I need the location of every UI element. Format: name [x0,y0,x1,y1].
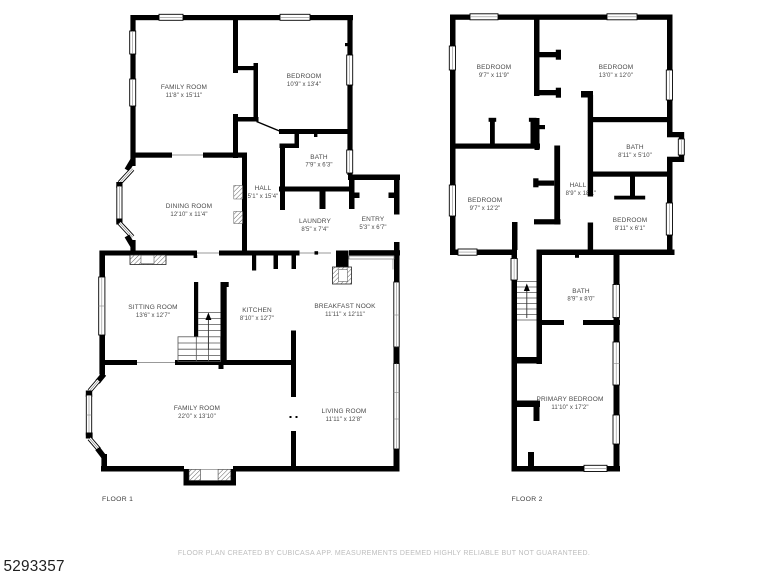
svg-text:ENTRY: ENTRY [362,216,385,223]
svg-text:FLOOR PLAN CREATED BY CUBICASA: FLOOR PLAN CREATED BY CUBICASA APP. MEAS… [178,550,590,557]
svg-text:BEDROOM: BEDROOM [477,64,512,71]
svg-text:BEDROOM: BEDROOM [599,64,634,71]
svg-text:FLOOR 1: FLOOR 1 [102,496,133,503]
svg-text:5'1" x 15'4": 5'1" x 15'4" [248,194,279,200]
svg-text:FAMILY ROOM: FAMILY ROOM [161,84,207,91]
svg-text:12'10" x 11'4": 12'10" x 11'4" [170,212,207,218]
svg-text:HALL: HALL [255,185,272,192]
svg-text:11'11" x 12'11": 11'11" x 12'11" [325,312,365,318]
svg-text:BATH: BATH [572,288,590,295]
svg-text:DINING ROOM: DINING ROOM [166,203,212,210]
svg-text:11'11" x 12'8": 11'11" x 12'8" [326,417,363,423]
svg-text:22'0" x 13'10": 22'0" x 13'10" [178,414,216,420]
svg-text:BEDROOM: BEDROOM [613,217,648,224]
svg-text:BEDROOM: BEDROOM [468,197,503,204]
svg-text:8'10" x 12'7": 8'10" x 12'7" [240,316,274,322]
svg-text:7'9" x 6'3": 7'9" x 6'3" [305,163,332,169]
svg-text:HALL: HALL [570,182,587,189]
svg-text:8'9" x 8'0": 8'9" x 8'0" [567,297,594,303]
svg-text:BEDROOM: BEDROOM [287,73,322,80]
svg-text:FAMILY ROOM: FAMILY ROOM [174,405,220,412]
svg-text:SITTING ROOM: SITTING ROOM [128,304,177,311]
svg-text:PRIMARY BEDROOM: PRIMARY BEDROOM [536,396,603,403]
svg-text:9'7" x 11'9": 9'7" x 11'9" [479,73,509,79]
svg-text:9'7" x 12'2": 9'7" x 12'2" [470,206,501,212]
svg-text:BATH: BATH [310,154,328,161]
svg-text:8'11" x 5'10": 8'11" x 5'10" [618,153,652,159]
svg-text:LAUNDRY: LAUNDRY [299,218,332,225]
svg-text:11'8" x 15'11": 11'8" x 15'11" [166,93,203,99]
svg-text:FLOOR 2: FLOOR 2 [512,496,543,503]
svg-text:13'6" x 12'7": 13'6" x 12'7" [136,313,170,319]
svg-text:LIVING ROOM: LIVING ROOM [322,408,367,415]
svg-text:BATH: BATH [626,144,644,151]
svg-text:8'11" x 6'1": 8'11" x 6'1" [615,226,645,232]
svg-text:5293357: 5293357 [4,558,65,575]
svg-text:KITCHEN: KITCHEN [242,307,272,314]
svg-text:8'5" x 7'4": 8'5" x 7'4" [301,227,328,233]
svg-text:10'9" x 13'4": 10'9" x 13'4" [287,82,321,88]
svg-text:13'0" x 12'0": 13'0" x 12'0" [599,73,633,79]
svg-text:11'10" x 17'2": 11'10" x 17'2" [551,405,588,411]
svg-text:BREAKFAST NOOK: BREAKFAST NOOK [314,303,376,310]
svg-text:5'3" x 6'7": 5'3" x 6'7" [359,225,386,231]
